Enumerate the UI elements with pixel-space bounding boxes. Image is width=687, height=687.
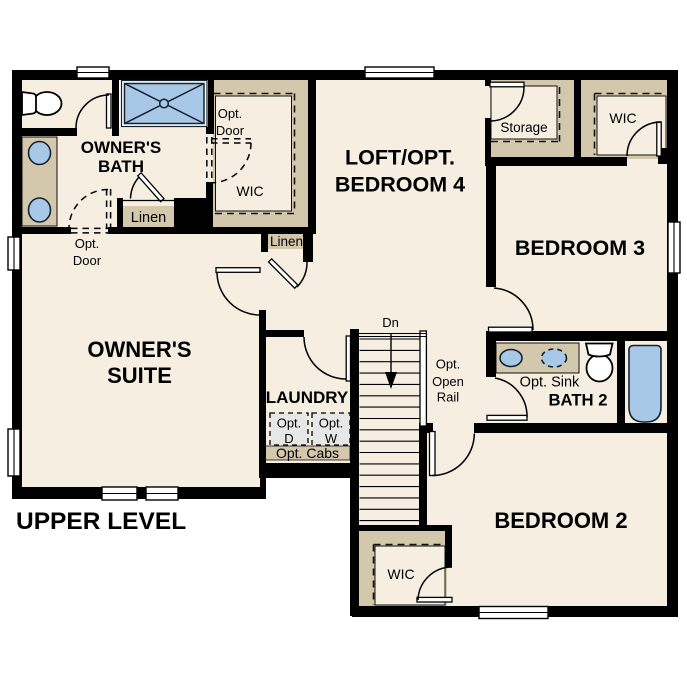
svg-text:BEDROOM 2: BEDROOM 2 bbox=[494, 508, 627, 533]
svg-text:SUITE: SUITE bbox=[107, 363, 172, 388]
svg-text:Opt.: Opt. bbox=[436, 357, 461, 372]
svg-text:W: W bbox=[325, 431, 338, 446]
svg-text:D: D bbox=[284, 431, 293, 446]
svg-text:Open: Open bbox=[432, 374, 464, 389]
svg-text:BATH 2: BATH 2 bbox=[549, 391, 608, 410]
svg-text:Dn: Dn bbox=[382, 315, 399, 330]
svg-text:LAUNDRY: LAUNDRY bbox=[266, 388, 349, 407]
svg-text:WIC: WIC bbox=[236, 183, 263, 199]
svg-text:BEDROOM 4: BEDROOM 4 bbox=[335, 173, 465, 197]
svg-text:LOFT/OPT.: LOFT/OPT. bbox=[345, 146, 455, 170]
svg-text:WIC: WIC bbox=[387, 566, 414, 582]
svg-text:WIC: WIC bbox=[609, 110, 636, 126]
svg-text:BATH: BATH bbox=[98, 157, 144, 176]
svg-text:Linen: Linen bbox=[270, 234, 303, 249]
svg-text:Opt.: Opt. bbox=[75, 236, 100, 251]
svg-text:Opt.: Opt. bbox=[277, 416, 302, 431]
svg-text:OWNER'S: OWNER'S bbox=[87, 337, 191, 362]
svg-text:Door: Door bbox=[73, 253, 102, 268]
svg-text:OWNER'S: OWNER'S bbox=[81, 138, 162, 157]
svg-text:Door: Door bbox=[216, 123, 245, 138]
svg-text:BEDROOM 3: BEDROOM 3 bbox=[515, 236, 645, 260]
svg-text:Opt. Sink: Opt. Sink bbox=[520, 375, 580, 391]
svg-text:Opt.: Opt. bbox=[218, 106, 243, 121]
svg-text:Opt.: Opt. bbox=[319, 416, 344, 431]
svg-text:Storage: Storage bbox=[500, 120, 547, 135]
svg-text:UPPER LEVEL: UPPER LEVEL bbox=[16, 508, 186, 535]
svg-text:Linen: Linen bbox=[131, 210, 166, 226]
svg-text:Opt. Cabs: Opt. Cabs bbox=[276, 445, 339, 461]
svg-text:Rail: Rail bbox=[437, 390, 460, 405]
